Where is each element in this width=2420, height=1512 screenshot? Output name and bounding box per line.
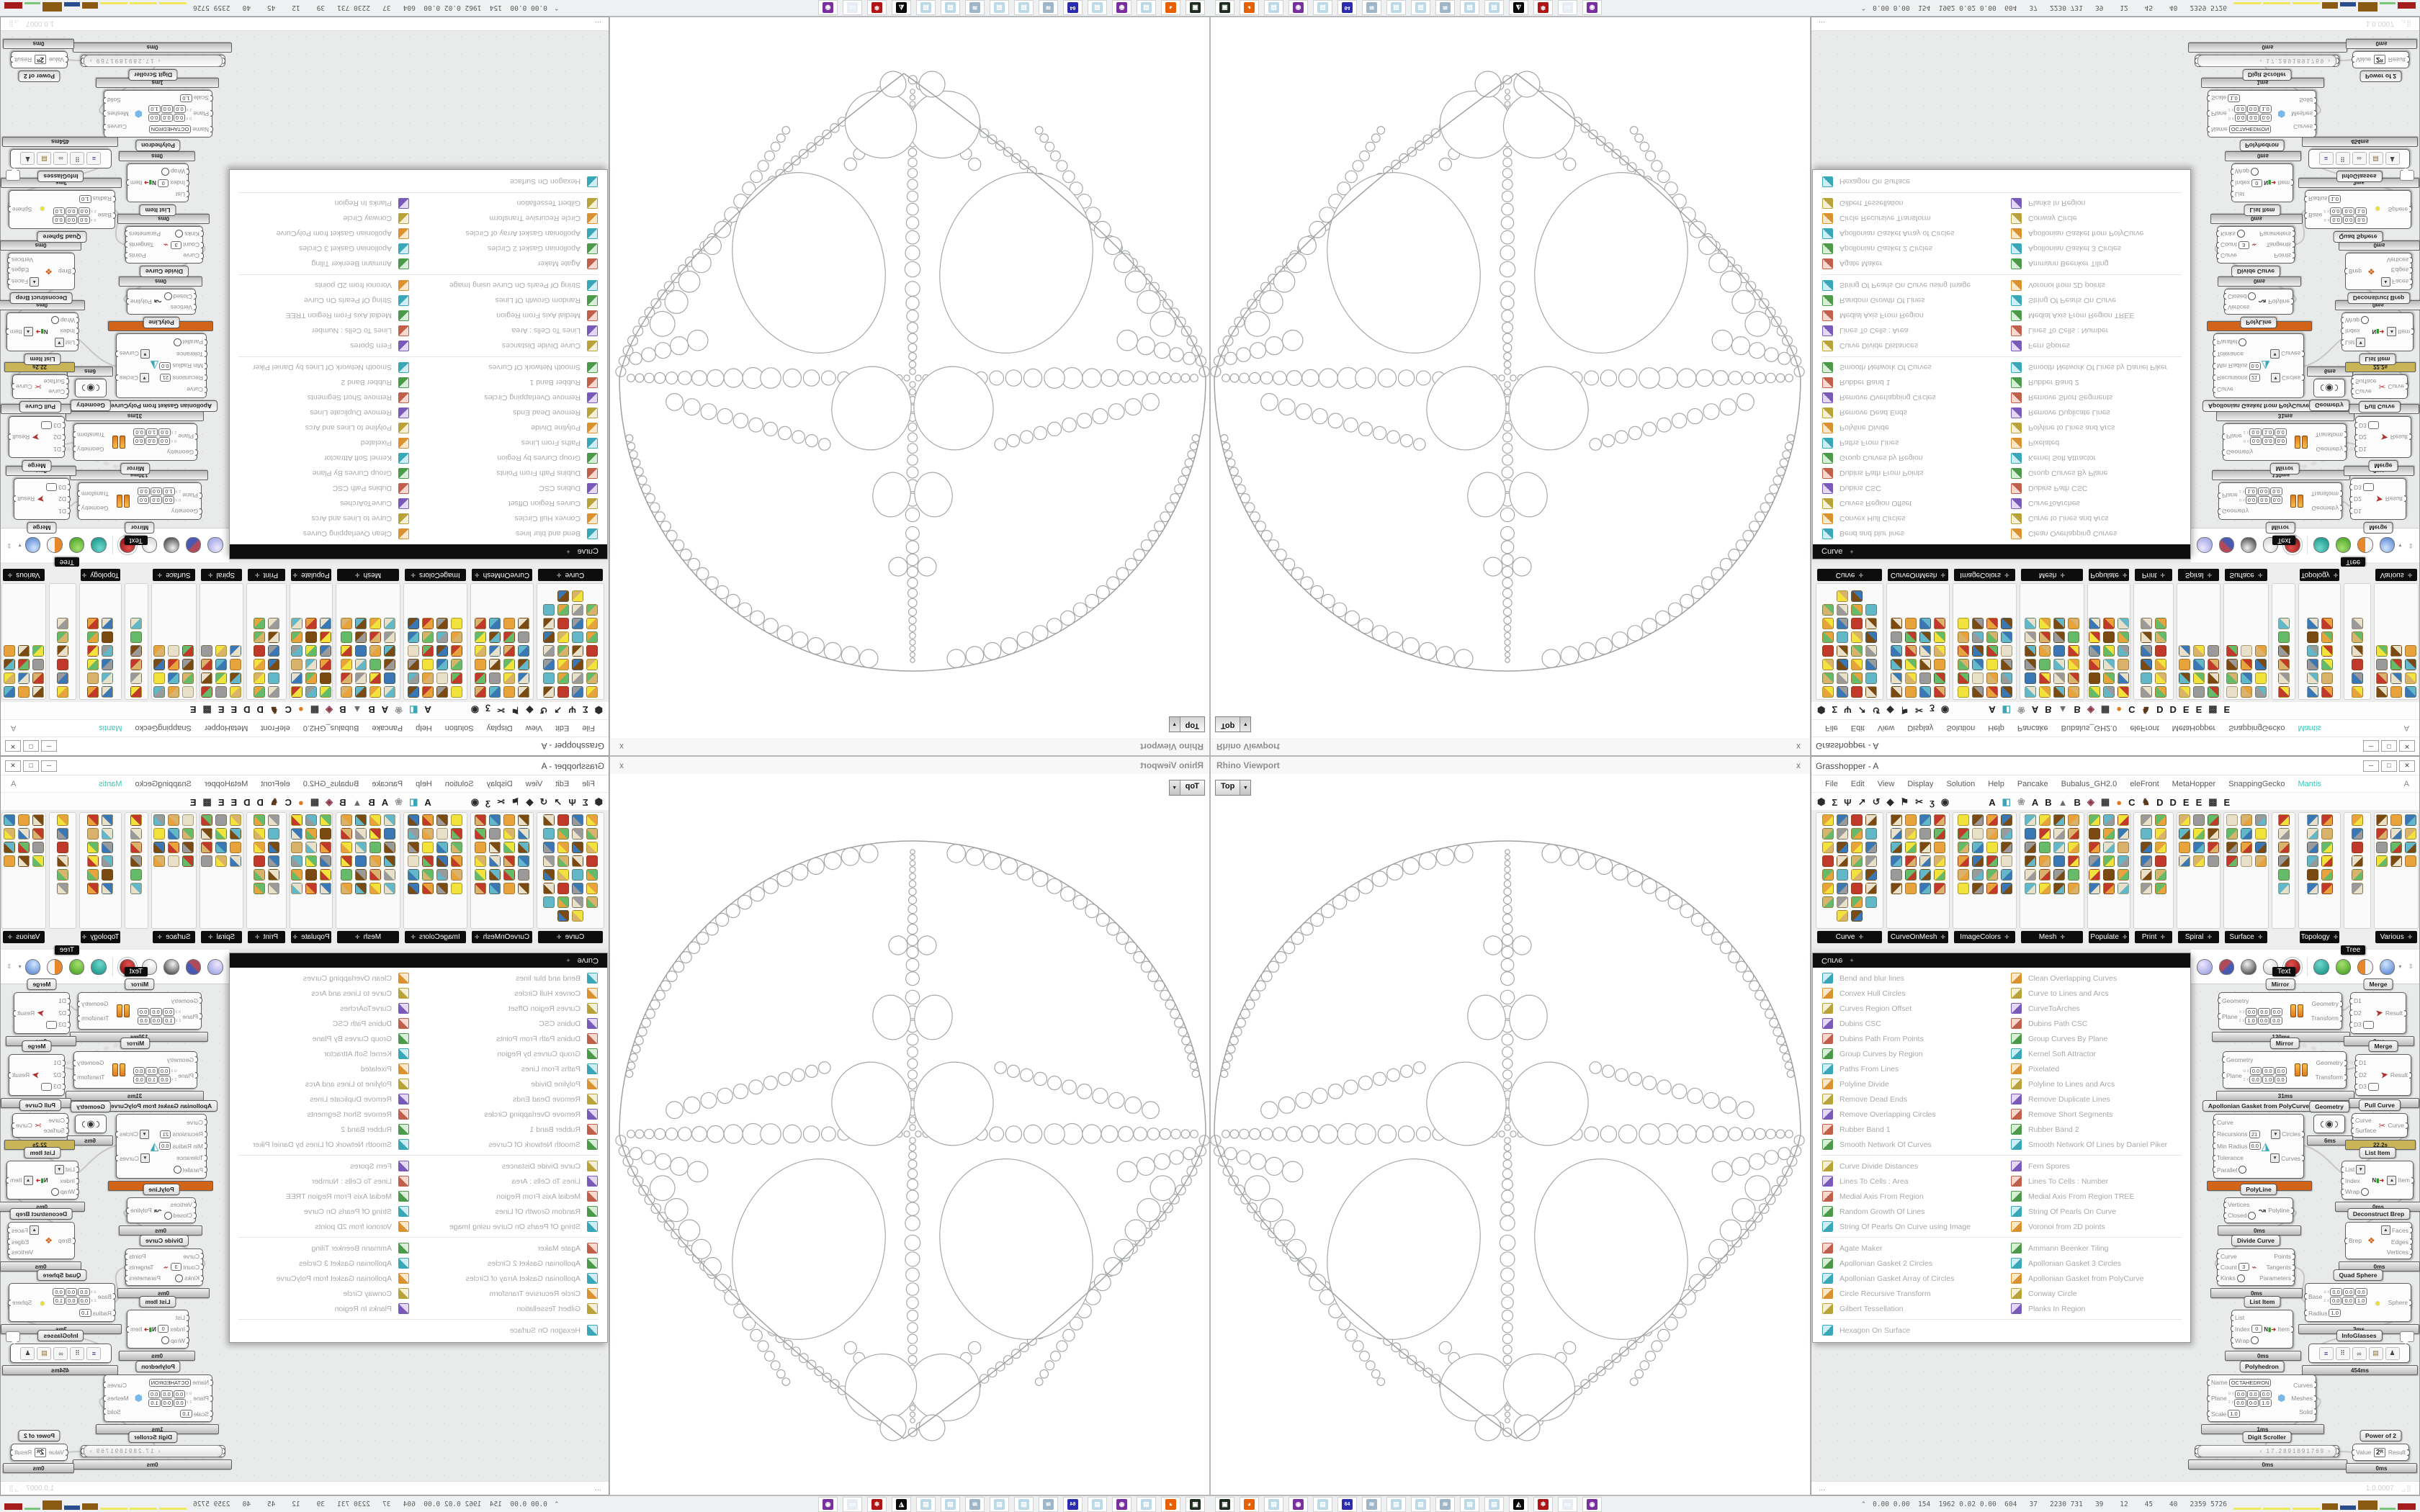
component-icon[interactable] xyxy=(1972,814,1984,826)
value-box[interactable]: 0.0 xyxy=(78,216,89,224)
plugin-tab-icon-0[interactable]: A xyxy=(1989,705,1995,716)
menu-item-curve-to-lines-and-arcs[interactable]: Curve to Lines and Arcs xyxy=(230,988,418,999)
plugin-tab-icon-15[interactable]: E xyxy=(218,705,225,716)
component-icon[interactable] xyxy=(1891,645,1902,657)
component-icon[interactable] xyxy=(2226,842,2238,853)
component-icon[interactable] xyxy=(423,869,434,881)
component-icon[interactable] xyxy=(543,604,555,616)
component-icon[interactable] xyxy=(183,672,194,684)
node-port-in[interactable] xyxy=(2213,374,2215,381)
menu-item-snappinggecko[interactable]: SnappingGecko xyxy=(2222,780,2291,788)
menu-item-rubber-band-2[interactable]: Rubber Band 2 xyxy=(230,377,418,388)
component-icon[interactable] xyxy=(2039,618,2051,629)
component-icon[interactable] xyxy=(1891,828,1902,840)
component-icon[interactable] xyxy=(291,686,302,698)
menu-item-pancake[interactable]: Pancake xyxy=(365,724,409,733)
chevron-down-icon[interactable]: ▾ xyxy=(2398,542,2401,549)
component-icon[interactable] xyxy=(183,686,194,698)
component-icon[interactable] xyxy=(2278,842,2290,853)
tab-icon-4[interactable]: ↺ xyxy=(539,704,547,716)
component-icon[interactable] xyxy=(2141,814,2152,826)
component-icon[interactable] xyxy=(423,883,434,894)
value-box[interactable]: 0.0 xyxy=(158,437,170,445)
menu-item-group-curves-by-plane[interactable]: Group Curves By Plane xyxy=(2002,468,2190,479)
taskbar-icon-notepad[interactable]: ▤ xyxy=(1460,1,1479,16)
node-pill-infoglasses[interactable]: InfoGlasses xyxy=(2336,1330,2382,1341)
component-icon[interactable] xyxy=(437,645,449,657)
node-deconstruct-brep[interactable]: Brep❖▲FacesEdgesVertices xyxy=(8,1222,75,1259)
selected-green-icon[interactable] xyxy=(2336,959,2352,975)
tab-icon-8[interactable]: ʒ xyxy=(485,705,490,716)
component-icon[interactable] xyxy=(268,659,279,670)
node-pill-pull-curve[interactable]: Pull Curve xyxy=(2359,401,2401,413)
tab-icon-8[interactable]: ʒ xyxy=(485,797,490,808)
node-divide-curve[interactable]: CurveCount3Kinks⌁PointsTangentsParameter… xyxy=(125,226,203,264)
menu-item-remove-short-segments[interactable]: Remove Short Segments xyxy=(230,392,418,403)
menu-item-metahopper[interactable]: MetaHopper xyxy=(198,780,255,788)
tab-icon-6[interactable]: ⚑ xyxy=(511,704,520,716)
component-icon[interactable] xyxy=(572,896,583,908)
menu-item-polyline-to-lines-and-arcs[interactable]: Polyline to Lines and Arcs xyxy=(2002,423,2190,433)
component-icon[interactable] xyxy=(2278,631,2290,643)
component-icon[interactable] xyxy=(1934,814,1945,826)
value-box[interactable]: 0.0 xyxy=(148,1390,160,1398)
value-box[interactable]: 0.0 xyxy=(2271,1008,2282,1016)
infoglasses-icon-0[interactable]: ≡ xyxy=(87,153,102,166)
component-icon[interactable] xyxy=(2039,828,2051,840)
menu-item-dubins-csc[interactable]: Dubins CSC xyxy=(418,1018,607,1029)
port-button[interactable]: ▲ xyxy=(2381,1225,2390,1235)
value-box[interactable]: 0.0 xyxy=(53,1288,64,1296)
menu-item-convex-hull-circles[interactable]: Convex Hull Circles xyxy=(418,988,607,999)
component-icon[interactable] xyxy=(32,645,44,657)
taskbar-icon-script-file[interactable]: ≋ xyxy=(1039,1497,1058,1512)
component-icon[interactable] xyxy=(154,645,166,657)
palette-tab-various[interactable]: Various✛ xyxy=(3,931,45,943)
component-icon[interactable] xyxy=(452,686,463,698)
value-box[interactable]: 21 xyxy=(2249,1130,2260,1138)
value-box[interactable]: 1.0 xyxy=(180,1410,192,1418)
component-icon[interactable] xyxy=(216,659,228,670)
menu-item-remove-short-segments[interactable]: Remove Short Segments xyxy=(2002,392,2190,403)
menu-item-clean-overlapping-curves[interactable]: Clean Overlapping Curves xyxy=(230,528,418,539)
node-pill-digit-scroller[interactable]: Digit Scroller xyxy=(128,69,178,81)
component-icon[interactable] xyxy=(131,814,143,826)
component-icon[interactable] xyxy=(572,814,583,826)
palette-tab-populate[interactable]: Populate✛ xyxy=(291,931,331,943)
component-icon[interactable] xyxy=(2068,883,2079,894)
menu-item-convex-hull-circles[interactable]: Convex Hull Circles xyxy=(418,513,607,524)
component-icon[interactable] xyxy=(2179,659,2190,670)
menu-item-dubins-csc[interactable]: Dubins CSC xyxy=(1813,1018,2002,1029)
component-icon[interactable] xyxy=(2255,855,2267,867)
node-pill-digit-scroller[interactable]: Digit Scroller xyxy=(2242,1431,2292,1443)
value-box[interactable]: 0.0 xyxy=(2262,1067,2274,1075)
node-port-in[interactable] xyxy=(2321,1121,2323,1128)
plugin-tab-icon-0[interactable]: A xyxy=(424,797,431,808)
component-icon[interactable] xyxy=(2241,814,2252,826)
component-icon[interactable] xyxy=(1986,645,1998,657)
component-icon[interactable] xyxy=(2001,842,2012,853)
infoglasses-icon-0[interactable]: ≡ xyxy=(87,1347,102,1360)
menu-item-curvetoarches[interactable]: CurveToArches xyxy=(230,1003,418,1014)
close-icon[interactable]: x xyxy=(1793,742,1804,752)
component-icon[interactable] xyxy=(423,842,434,853)
node-merge[interactable]: D1D2D3➤Result xyxy=(9,416,65,458)
component-icon[interactable] xyxy=(1851,855,1863,867)
component-icon[interactable] xyxy=(18,686,30,698)
comment-bubble-icon[interactable] xyxy=(2400,1331,2414,1342)
tab-icon-5[interactable]: ◆ xyxy=(1887,796,1894,808)
component-icon[interactable] xyxy=(2321,855,2333,867)
component-icon[interactable] xyxy=(2039,631,2051,643)
menu-item-circle-recursive-transform[interactable]: Circle Recursive Transform xyxy=(1813,1288,2002,1299)
chevron-up-icon[interactable]: ⌃ xyxy=(1861,1500,1867,1508)
taskbar-icon-script-file[interactable]: ≋ xyxy=(1435,1,1455,16)
component-icon[interactable] xyxy=(1851,828,1863,840)
component-icon[interactable] xyxy=(88,855,99,867)
component-icon[interactable] xyxy=(268,645,279,657)
taskbar-icon-notepad[interactable]: ▤ xyxy=(941,1497,960,1512)
plugin-tab-icon-12[interactable]: D xyxy=(2156,797,2163,808)
value-box[interactable]: 1.0 xyxy=(146,428,158,436)
node-port-in[interactable] xyxy=(2341,1189,2344,1195)
component-icon[interactable] xyxy=(341,659,352,670)
plugin-tab-icon-11[interactable]: ♞ xyxy=(270,704,279,716)
menu-item-display[interactable]: Display xyxy=(1901,780,1940,788)
palette-tab-mesh[interactable]: Mesh✛ xyxy=(2021,569,2083,581)
component-icon[interactable] xyxy=(2155,631,2166,643)
component-icon[interactable] xyxy=(2179,672,2190,684)
selected-green-icon[interactable] xyxy=(69,959,85,975)
menu-item-ammann-beenker-tiling[interactable]: Ammann Beenker Tiling xyxy=(230,1243,418,1254)
component-icon[interactable] xyxy=(154,842,166,853)
plugin-tab-icon-16[interactable]: ▩ xyxy=(2208,704,2217,716)
component-icon[interactable] xyxy=(1837,910,1848,922)
component-icon[interactable] xyxy=(543,855,555,867)
node-infoglasses[interactable]: ≡⠿∞▤♟ xyxy=(2308,149,2410,168)
component-icon[interactable] xyxy=(475,869,486,881)
component-icon[interactable] xyxy=(1986,659,1998,670)
component-icon[interactable] xyxy=(1891,814,1902,826)
component-icon[interactable] xyxy=(2089,855,2100,867)
component-icon[interactable] xyxy=(169,686,180,698)
chevron-down-icon[interactable]: ▾ xyxy=(2398,963,2401,970)
menu-item-edit[interactable]: Edit xyxy=(549,724,575,733)
component-icon[interactable] xyxy=(254,814,265,826)
menu-item-bubalus_gh2.0[interactable]: Bubalus_GH2.0 xyxy=(297,780,366,788)
canvas-scrollbar[interactable]: ⇕ xyxy=(2408,541,2414,549)
node-merge[interactable]: D1D2D3➤Result xyxy=(2355,1054,2411,1096)
component-icon[interactable] xyxy=(154,686,166,698)
component-icon[interactable] xyxy=(2089,842,2100,853)
menu-item-view[interactable]: View xyxy=(1871,724,1901,733)
value-box[interactable]: 1.0 xyxy=(2259,1399,2271,1407)
node-port-in[interactable] xyxy=(2231,1326,2233,1332)
component-icon[interactable] xyxy=(1822,869,1834,881)
node-pill-quad-sphere[interactable]: Quad Sphere xyxy=(2334,231,2383,243)
component-icon[interactable] xyxy=(2241,659,2252,670)
node-port-out[interactable] xyxy=(13,1010,16,1017)
node-pill-merge[interactable]: Merge xyxy=(27,978,56,990)
component-icon[interactable] xyxy=(2068,842,2079,853)
component-icon[interactable] xyxy=(169,828,180,840)
viewport-camera-button[interactable]: Top ▼ xyxy=(1215,716,1251,732)
component-icon[interactable] xyxy=(341,883,352,894)
component-icon[interactable] xyxy=(423,659,434,670)
menu-item-group-curves-by-region[interactable]: Group Curves by Region xyxy=(418,1048,607,1059)
component-icon[interactable] xyxy=(369,645,381,657)
value-box[interactable]: 1.0 xyxy=(2228,94,2239,102)
component-icon[interactable] xyxy=(1934,883,1945,894)
component-icon[interactable] xyxy=(88,883,99,894)
tab-icon-2[interactable]: Ψ xyxy=(1844,705,1852,716)
value-box[interactable]: 0.0 xyxy=(150,1008,161,1016)
menu-item-remove-overlapping-circles[interactable]: Remove Overlapping Circles xyxy=(418,392,607,403)
component-icon[interactable] xyxy=(2117,869,2129,881)
component-icon[interactable] xyxy=(557,896,569,908)
component-icon[interactable] xyxy=(2352,686,2363,698)
component-icon[interactable] xyxy=(2278,686,2290,698)
preview-off-icon[interactable] xyxy=(164,959,180,975)
component-icon[interactable] xyxy=(341,645,352,657)
node-merge[interactable]: D1D2D3➤Result xyxy=(14,992,70,1034)
node-port-in[interactable] xyxy=(2304,196,2307,202)
node-port-in[interactable] xyxy=(2218,997,2220,1004)
component-icon[interactable] xyxy=(369,631,381,643)
component-icon[interactable] xyxy=(1822,842,1834,853)
component-icon[interactable] xyxy=(355,672,367,684)
menu-item-string-of-pearls-on-curve[interactable]: String Of Pearls On Curve xyxy=(230,1206,418,1217)
component-icon[interactable] xyxy=(2307,828,2318,840)
plugin-tab-icon-8[interactable]: ▦ xyxy=(310,704,319,716)
node-pill-quad-sphere[interactable]: Quad Sphere xyxy=(2334,1269,2383,1281)
component-icon[interactable] xyxy=(503,672,515,684)
palette-tab-surface[interactable]: Surface✛ xyxy=(2225,569,2267,581)
menu-item-bend-and-blur-lines[interactable]: Bend and blur lines xyxy=(418,973,607,984)
component-icon[interactable] xyxy=(1905,855,1917,867)
taskbar-icon-firefox[interactable]: ◕ xyxy=(1240,1,1259,16)
component-icon[interactable] xyxy=(268,672,279,684)
component-icon[interactable] xyxy=(1865,604,1877,616)
value-box[interactable]: 0.0 xyxy=(2342,1297,2354,1305)
plugin-tab-icon-9[interactable]: ● xyxy=(298,705,304,716)
node-quad-sphere[interactable]: Baseo x0.00.00.0z x0.00.01.0Radius1.0●Sp… xyxy=(2305,190,2411,229)
component-icon[interactable] xyxy=(32,828,44,840)
component-icon[interactable] xyxy=(254,686,265,698)
component-icon[interactable] xyxy=(320,828,331,840)
menu-item-random-growth-of-lines[interactable]: Random Growth Of Lines xyxy=(1813,295,2002,306)
component-icon[interactable] xyxy=(543,645,555,657)
menu-item-smooth-network-of-curves[interactable]: Smooth Network Of Curves xyxy=(418,362,607,373)
port-button[interactable]: ▼ xyxy=(55,338,64,348)
menu-item-apollonian-gasket-array-of-circles[interactable]: Apollonian Gasket Array of Circles xyxy=(418,228,607,239)
menu-item-kernel-soft-attractor[interactable]: Kernel Soft Attractor xyxy=(230,453,418,464)
component-icon[interactable] xyxy=(452,855,463,867)
menu-item-string-of-pearls-on-curve-using-image[interactable]: String Of Pearls On Curve using Image xyxy=(1813,280,2002,291)
component-icon[interactable] xyxy=(2307,855,2318,867)
value-box[interactable]: 0.0 xyxy=(158,1076,170,1084)
component-icon[interactable] xyxy=(503,842,515,853)
palette-tab-mesh[interactable]: Mesh✛ xyxy=(337,931,399,943)
component-icon[interactable] xyxy=(1822,645,1834,657)
node-quad-sphere[interactable]: Baseo x0.00.00.0z x0.00.01.0Radius1.0●Sp… xyxy=(2305,1283,2411,1322)
node-merge[interactable]: D1D2D3➤Result xyxy=(2350,992,2406,1034)
toggle-icon[interactable] xyxy=(161,1336,169,1344)
node-port-in[interactable] xyxy=(2222,1056,2225,1063)
menu-item-dubins-path-csc[interactable]: Dubins Path CSC xyxy=(230,1018,418,1029)
component-icon[interactable] xyxy=(489,869,501,881)
component-icon[interactable] xyxy=(230,855,242,867)
node-port-out[interactable] xyxy=(73,446,76,453)
menu-item-curve-to-lines-and-arcs[interactable]: Curve to Lines and Arcs xyxy=(2002,988,2190,999)
node-port-out[interactable] xyxy=(77,1015,80,1022)
node-infoglasses[interactable]: ≡⠿∞▤♟ xyxy=(10,149,112,168)
plugin-tab-icon-14[interactable]: E xyxy=(230,705,237,716)
preview-custom-icon[interactable] xyxy=(2357,959,2373,975)
node-port-out[interactable] xyxy=(2336,1448,2339,1454)
component-icon[interactable] xyxy=(254,883,265,894)
component-icon[interactable] xyxy=(1905,686,1917,698)
component-icon[interactable] xyxy=(320,855,331,867)
component-icon[interactable] xyxy=(341,686,352,698)
close-button[interactable]: ✕ xyxy=(5,741,21,752)
value-box[interactable] xyxy=(2368,1083,2379,1091)
component-icon[interactable] xyxy=(2226,645,2238,657)
plugin-tab-icon-9[interactable]: ● xyxy=(298,797,304,808)
menu-item-apollonian-gasket-array-of-circles[interactable]: Apollonian Gasket Array of Circles xyxy=(418,1273,607,1284)
component-icon[interactable] xyxy=(2117,814,2129,826)
node-pill-list-item[interactable]: List Item xyxy=(2359,354,2396,365)
plugin-tab-icon-14[interactable]: E xyxy=(2183,797,2190,808)
value-box[interactable]: 1.0 xyxy=(79,1309,91,1317)
component-icon[interactable] xyxy=(503,686,515,698)
node-pill-apollonian-gasket-from-polycurve[interactable]: Apollonian Gasket from PolyCurve xyxy=(105,400,218,412)
node-deconstruct-brep[interactable]: Brep❖▲FacesEdgesVertices xyxy=(2345,1222,2412,1259)
component-icon[interactable] xyxy=(131,672,143,684)
component-icon[interactable] xyxy=(268,855,279,867)
tab-icon-9[interactable]: ◉ xyxy=(1941,704,1949,716)
port-button[interactable]: ▲ xyxy=(30,1225,39,1235)
component-icon[interactable] xyxy=(320,883,331,894)
component-icon[interactable] xyxy=(2321,828,2333,840)
document-preview-icon[interactable] xyxy=(25,538,41,554)
plugin-tab-icon-16[interactable]: ▩ xyxy=(2208,796,2217,808)
tab-icon-5[interactable]: ◆ xyxy=(526,796,533,808)
component-icon[interactable] xyxy=(102,659,114,670)
component-icon[interactable] xyxy=(1851,842,1863,853)
node-port-in[interactable] xyxy=(2222,449,2225,456)
component-icon[interactable] xyxy=(1972,883,1984,894)
palette-tab-print[interactable]: Print✛ xyxy=(248,931,285,943)
palette-tab-curveonmesh[interactable]: CurveOnMesh✛ xyxy=(472,569,532,581)
menu-item-help[interactable]: Help xyxy=(409,780,439,788)
component-icon[interactable] xyxy=(2179,855,2190,867)
component-icon[interactable] xyxy=(518,828,529,840)
value-box[interactable]: 0.0 xyxy=(133,1067,145,1075)
tab-icon-2[interactable]: Ψ xyxy=(568,705,576,716)
infoglasses-icon-4[interactable]: ♟ xyxy=(21,1347,35,1360)
toggle-icon[interactable] xyxy=(2237,230,2245,238)
node-list-item[interactable]: List▼IndexWrapN▮➜▲Item xyxy=(6,312,79,351)
component-icon[interactable] xyxy=(2352,631,2363,643)
menu-item-display[interactable]: Display xyxy=(1901,724,1940,733)
component-icon[interactable] xyxy=(423,618,434,629)
menu-item-remove-duplicate-lines[interactable]: Remove Duplicate Lines xyxy=(230,1094,418,1104)
value-box[interactable] xyxy=(46,1021,57,1029)
node-polyline[interactable]: VerticesClosed↝Polyline xyxy=(2224,289,2293,315)
minimize-button[interactable]: ─ xyxy=(2363,741,2379,752)
node-geometry[interactable]: ◉ xyxy=(2313,1115,2345,1133)
component-icon[interactable] xyxy=(2141,686,2152,698)
component-icon[interactable] xyxy=(2001,659,2012,670)
node-port-in[interactable] xyxy=(2321,385,2323,392)
plugin-tab-icon-2[interactable]: ❀ xyxy=(2017,704,2025,716)
close-icon[interactable]: x xyxy=(616,760,627,770)
component-icon[interactable] xyxy=(1891,672,1902,684)
component-icon[interactable] xyxy=(475,645,486,657)
taskbar-icon-window-switcher[interactable]: ▭ xyxy=(843,1,862,16)
viewport-camera-button[interactable]: Top ▼ xyxy=(1169,716,1205,732)
plugin-tab-icon-14[interactable]: E xyxy=(230,797,237,808)
node-mirror[interactable]: GeometryPlaneo x0.00.00.0z x0.01.00.0Geo… xyxy=(2223,1051,2347,1089)
node-port-in[interactable] xyxy=(2351,379,2354,385)
node-pill-mirror[interactable]: Mirror xyxy=(2266,522,2295,534)
menu-item-group-curves-by-region[interactable]: Group Curves by Region xyxy=(1813,1048,2002,1059)
node-port-out[interactable] xyxy=(103,1395,106,1402)
component-icon[interactable] xyxy=(503,855,515,867)
component-icon[interactable] xyxy=(2155,686,2166,698)
menu-item-curvetoarches[interactable]: CurveToArches xyxy=(230,498,418,509)
toggle-icon[interactable] xyxy=(2251,168,2259,176)
component-icon[interactable] xyxy=(2053,883,2065,894)
component-icon[interactable] xyxy=(305,814,317,826)
component-icon[interactable] xyxy=(384,686,395,698)
component-icon[interactable] xyxy=(408,883,420,894)
node-pill-polyhedron[interactable]: Polyhedron xyxy=(2239,140,2285,151)
component-icon[interactable] xyxy=(341,869,352,881)
component-icon[interactable] xyxy=(2155,828,2166,840)
component-icon[interactable] xyxy=(2278,883,2290,894)
node-port-in[interactable] xyxy=(2218,508,2220,515)
menu-item-lines-to-cells-number[interactable]: Lines To Cells : Number xyxy=(2002,1176,2190,1187)
node-pill-merge[interactable]: Merge xyxy=(22,1040,51,1052)
menu-item-gilbert-tessellation[interactable]: Gilbert Tessellation xyxy=(418,1303,607,1314)
value-box[interactable]: 0.0 xyxy=(138,1017,149,1025)
component-icon[interactable] xyxy=(2352,883,2363,894)
component-icon[interactable] xyxy=(2241,672,2252,684)
component-icon[interactable] xyxy=(102,672,114,684)
menu-item-dubins-csc[interactable]: Dubins CSC xyxy=(1813,483,2002,494)
component-icon[interactable] xyxy=(2068,672,2079,684)
component-icon[interactable] xyxy=(102,883,114,894)
component-icon[interactable] xyxy=(2089,883,2100,894)
node-port-out[interactable] xyxy=(126,1326,129,1333)
component-icon[interactable] xyxy=(489,618,501,629)
component-icon[interactable] xyxy=(2025,814,2036,826)
component-icon[interactable] xyxy=(2321,645,2333,657)
taskbar-icon-media-player-purple[interactable]: ◉ xyxy=(1582,1,1602,16)
component-icon[interactable] xyxy=(254,631,265,643)
component-icon[interactable] xyxy=(291,869,302,881)
component-icon[interactable] xyxy=(355,814,367,826)
component-icon[interactable] xyxy=(88,645,99,657)
component-icon[interactable] xyxy=(1865,672,1877,684)
menu-item-agate-maker[interactable]: Agate Maker xyxy=(1813,1243,2002,1254)
node-port-in[interactable] xyxy=(223,1448,225,1454)
component-icon[interactable] xyxy=(88,659,99,670)
component-icon[interactable] xyxy=(2117,842,2129,853)
